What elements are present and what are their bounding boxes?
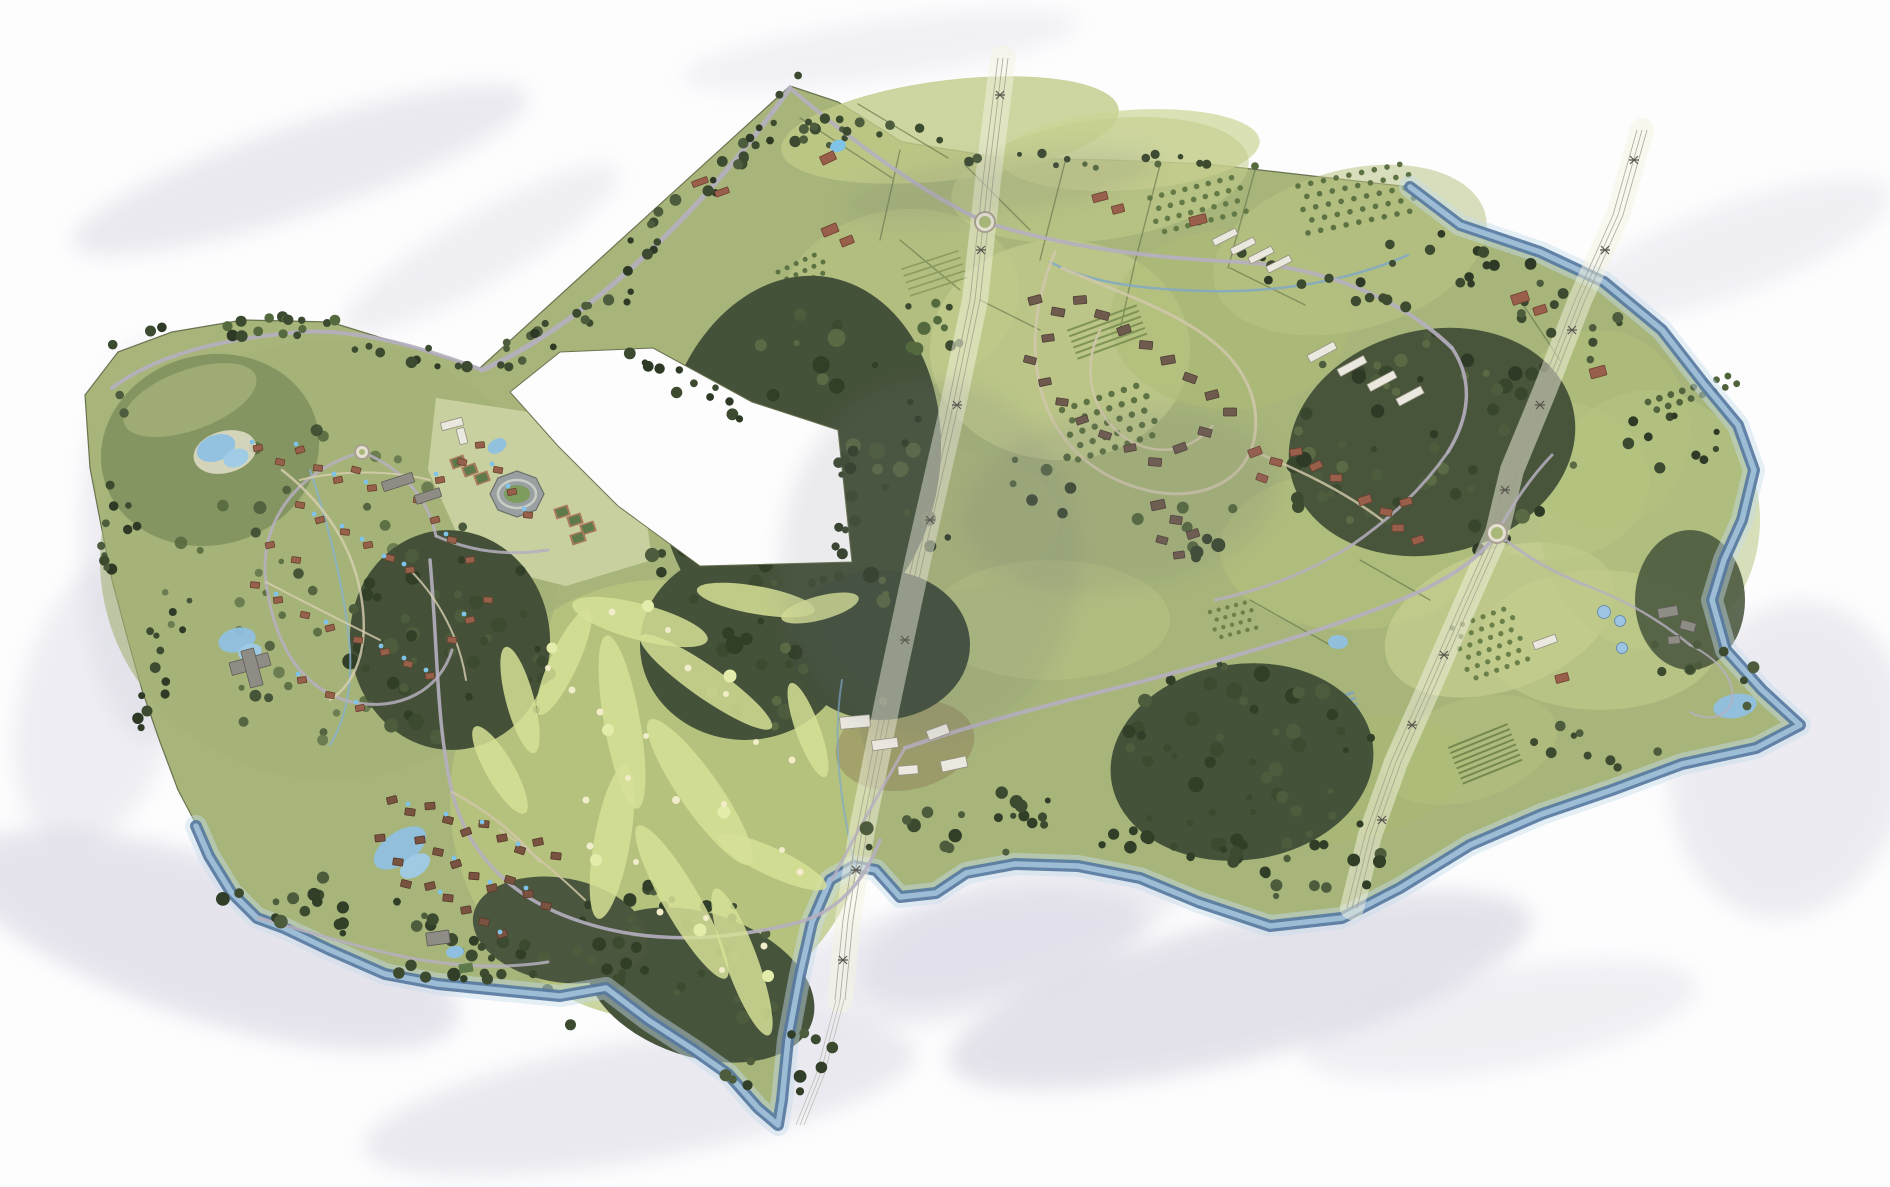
masterplan-scene	[0, 0, 1890, 1187]
roundabout-west	[355, 445, 369, 459]
canvas-area	[0, 0, 1890, 1187]
masterplan-svg	[0, 0, 1890, 1187]
pond-east	[1328, 635, 1348, 649]
roundabout-east	[1487, 523, 1507, 543]
masterplan-figure	[0, 0, 1890, 1187]
